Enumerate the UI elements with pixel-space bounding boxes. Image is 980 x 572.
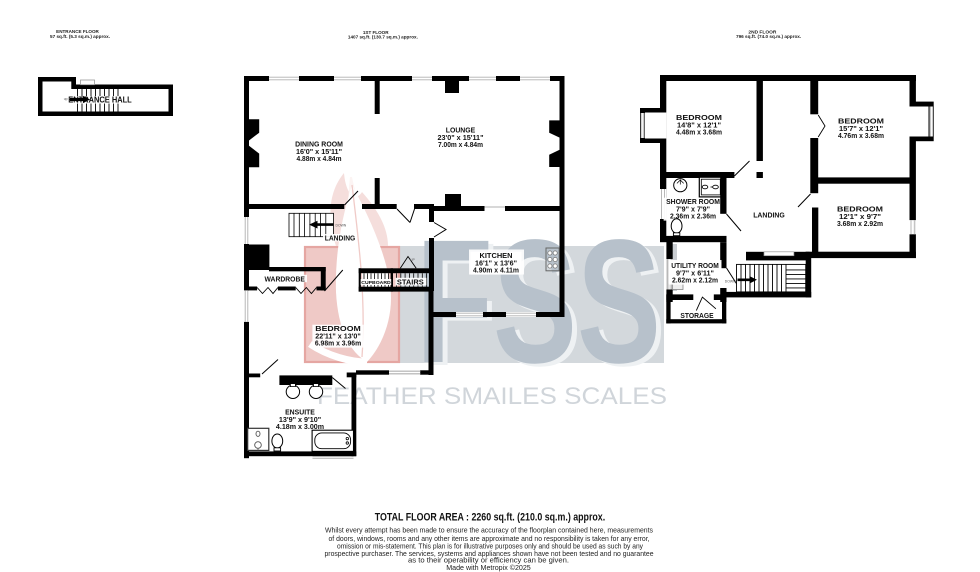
svg-text:22'11" x 13'0": 22'11" x 13'0" bbox=[315, 333, 361, 340]
svg-text:7.00m x 4.84m: 7.00m x 4.84m bbox=[438, 142, 483, 149]
svg-text:TOTAL FLOOR AREA : 2260 sq.ft.: TOTAL FLOOR AREA : 2260 sq.ft. (210.0 sq… bbox=[375, 511, 605, 523]
svg-text:up: up bbox=[64, 97, 68, 101]
svg-text:LOUNGE: LOUNGE bbox=[446, 126, 476, 135]
svg-text:STORAGE: STORAGE bbox=[680, 313, 714, 320]
svg-text:7'9" x 7'9": 7'9" x 7'9" bbox=[676, 206, 710, 213]
svg-text:BEDROOM: BEDROOM bbox=[676, 113, 722, 122]
svg-text:13'9" x 9'10": 13'9" x 9'10" bbox=[279, 417, 321, 424]
svg-text:1407 sq.ft. (130.7 sq.m.) appr: 1407 sq.ft. (130.7 sq.m.) approx. bbox=[348, 35, 418, 40]
svg-text:STAIRS: STAIRS bbox=[397, 280, 424, 287]
svg-text:UP: UP bbox=[410, 258, 415, 262]
svg-text:DINING ROOM: DINING ROOM bbox=[295, 140, 343, 149]
svg-text:DOWN: DOWN bbox=[336, 224, 347, 228]
svg-text:BEDROOM: BEDROOM bbox=[837, 205, 883, 214]
svg-text:2.62m x 2.12m: 2.62m x 2.12m bbox=[672, 278, 718, 285]
svg-text:14'8" x 12'1": 14'8" x 12'1" bbox=[677, 122, 721, 129]
svg-text:Made with Metropix ©2025: Made with Metropix ©2025 bbox=[446, 563, 531, 572]
svg-text:16'0" x 15'11": 16'0" x 15'11" bbox=[296, 149, 342, 156]
svg-text:LANDING: LANDING bbox=[753, 213, 785, 220]
svg-text:4.76m x 3.68m: 4.76m x 3.68m bbox=[838, 133, 884, 140]
svg-text:4.88m x 4.84m: 4.88m x 4.84m bbox=[297, 156, 342, 163]
svg-text:12'1" x 9'7": 12'1" x 9'7" bbox=[839, 214, 881, 221]
svg-text:15'7" x 12'1": 15'7" x 12'1" bbox=[839, 126, 883, 133]
svg-text:BEDROOM: BEDROOM bbox=[838, 117, 884, 126]
svg-text:6.98m x 3.96m: 6.98m x 3.96m bbox=[315, 341, 361, 348]
svg-text:23'0" x 15'11": 23'0" x 15'11" bbox=[438, 135, 484, 142]
svg-text:57 sq.ft. (5.3 sq.m.) approx.: 57 sq.ft. (5.3 sq.m.) approx. bbox=[50, 34, 110, 39]
svg-text:UTILITY ROOM: UTILITY ROOM bbox=[671, 261, 719, 270]
svg-text:4.48m x 3.68m: 4.48m x 3.68m bbox=[676, 130, 722, 137]
svg-text:4.90m x 4.11m: 4.90m x 4.11m bbox=[473, 268, 519, 275]
svg-text:16'1" x 13'6": 16'1" x 13'6" bbox=[475, 260, 517, 267]
svg-text:LANDING: LANDING bbox=[325, 236, 356, 243]
svg-text:DOWN: DOWN bbox=[725, 279, 736, 283]
svg-text:CUPBOARD: CUPBOARD bbox=[361, 280, 391, 285]
svg-text:WARDROBE: WARDROBE bbox=[265, 277, 306, 284]
svg-text:796 sq.ft. (74.0 sq.m.) approx: 796 sq.ft. (74.0 sq.m.) approx. bbox=[736, 34, 801, 39]
svg-text:SHOWER ROOM: SHOWER ROOM bbox=[666, 197, 720, 206]
svg-text:FEATHER SMAILES SCALES: FEATHER SMAILES SCALES bbox=[317, 383, 667, 410]
svg-text:KITCHEN: KITCHEN bbox=[480, 251, 513, 260]
svg-text:BEDROOM: BEDROOM bbox=[315, 324, 360, 333]
svg-text:ENSUITE: ENSUITE bbox=[285, 408, 315, 417]
svg-text:FSS: FSS bbox=[416, 204, 661, 400]
svg-text:3.68m x 2.92m: 3.68m x 2.92m bbox=[837, 221, 883, 228]
svg-text:9'7" x 6'11": 9'7" x 6'11" bbox=[676, 270, 714, 277]
